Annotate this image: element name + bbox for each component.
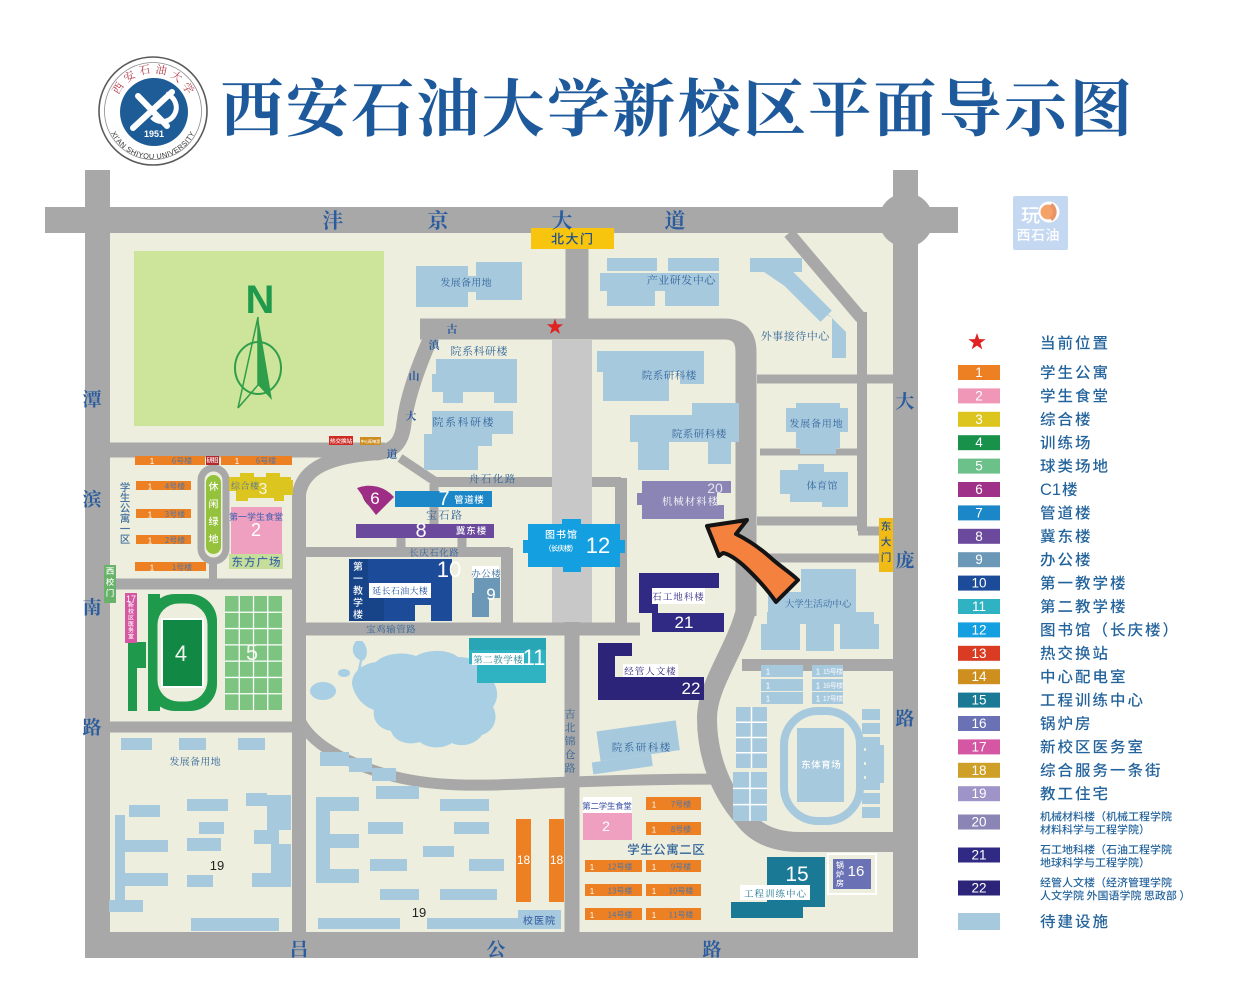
svg-text:1: 1 <box>590 911 595 920</box>
svg-text:21: 21 <box>675 613 694 632</box>
svg-text:1: 1 <box>766 668 771 677</box>
svg-text:4: 4 <box>175 641 187 666</box>
svg-text:5: 5 <box>975 459 983 474</box>
svg-text:18: 18 <box>517 853 531 867</box>
svg-text:15: 15 <box>971 693 986 708</box>
svg-text:1: 1 <box>652 801 657 810</box>
svg-text:10: 10 <box>971 576 986 591</box>
svg-text:8: 8 <box>975 529 983 544</box>
svg-text:19: 19 <box>412 905 426 920</box>
svg-text:1: 1 <box>652 826 657 835</box>
svg-text:11: 11 <box>523 645 546 670</box>
svg-text:1951: 1951 <box>144 129 164 139</box>
svg-text:2: 2 <box>602 818 610 834</box>
svg-text:17: 17 <box>971 739 986 754</box>
svg-text:4: 4 <box>975 435 983 450</box>
svg-text:C1: C1 <box>1040 481 1061 499</box>
svg-text:1: 1 <box>816 682 821 691</box>
svg-text:17: 17 <box>126 594 136 604</box>
svg-text:16: 16 <box>971 716 986 731</box>
svg-text:7: 7 <box>438 488 449 510</box>
svg-text:N: N <box>246 278 275 322</box>
svg-text:1: 1 <box>148 511 153 520</box>
svg-text:1: 1 <box>652 863 657 872</box>
svg-text:12: 12 <box>586 533 610 558</box>
svg-text:14: 14 <box>971 669 987 684</box>
svg-text:2: 2 <box>251 520 261 540</box>
svg-text:5: 5 <box>246 640 258 665</box>
svg-text:1: 1 <box>150 457 155 466</box>
svg-text:16: 16 <box>848 863 865 880</box>
svg-text:6: 6 <box>370 489 379 508</box>
svg-text:15: 15 <box>785 863 808 886</box>
svg-text:1: 1 <box>766 695 771 704</box>
svg-text:9: 9 <box>486 585 495 604</box>
svg-text:10: 10 <box>437 557 461 582</box>
svg-text:22: 22 <box>682 679 701 698</box>
svg-text:1: 1 <box>590 887 595 896</box>
svg-text:1: 1 <box>148 537 153 546</box>
svg-text:20: 20 <box>707 480 723 496</box>
svg-text:1: 1 <box>816 668 821 677</box>
svg-text:1: 1 <box>590 863 595 872</box>
svg-text:1: 1 <box>148 483 153 492</box>
svg-text:1: 1 <box>150 564 155 573</box>
svg-text:7: 7 <box>975 505 983 520</box>
svg-text:6: 6 <box>975 482 983 497</box>
svg-text:2: 2 <box>975 388 983 403</box>
svg-text:9: 9 <box>975 552 983 567</box>
svg-text:1: 1 <box>652 911 657 920</box>
svg-text:3: 3 <box>975 412 983 427</box>
svg-text:1: 1 <box>766 682 771 691</box>
svg-text:1: 1 <box>975 365 983 380</box>
svg-text:13: 13 <box>971 646 986 661</box>
svg-text:21: 21 <box>971 848 986 863</box>
svg-text:11: 11 <box>972 599 986 614</box>
svg-text:18: 18 <box>550 853 564 867</box>
svg-text:18: 18 <box>971 763 986 778</box>
svg-text:1: 1 <box>235 457 240 466</box>
svg-text:22: 22 <box>971 881 986 896</box>
svg-text:8: 8 <box>415 520 426 542</box>
svg-text:19: 19 <box>210 858 224 873</box>
svg-text:12: 12 <box>971 622 986 637</box>
svg-text:1: 1 <box>652 887 657 896</box>
svg-text:3: 3 <box>259 481 268 498</box>
svg-text:19: 19 <box>971 786 986 801</box>
svg-text:20: 20 <box>971 815 986 830</box>
svg-text:1: 1 <box>816 695 821 704</box>
